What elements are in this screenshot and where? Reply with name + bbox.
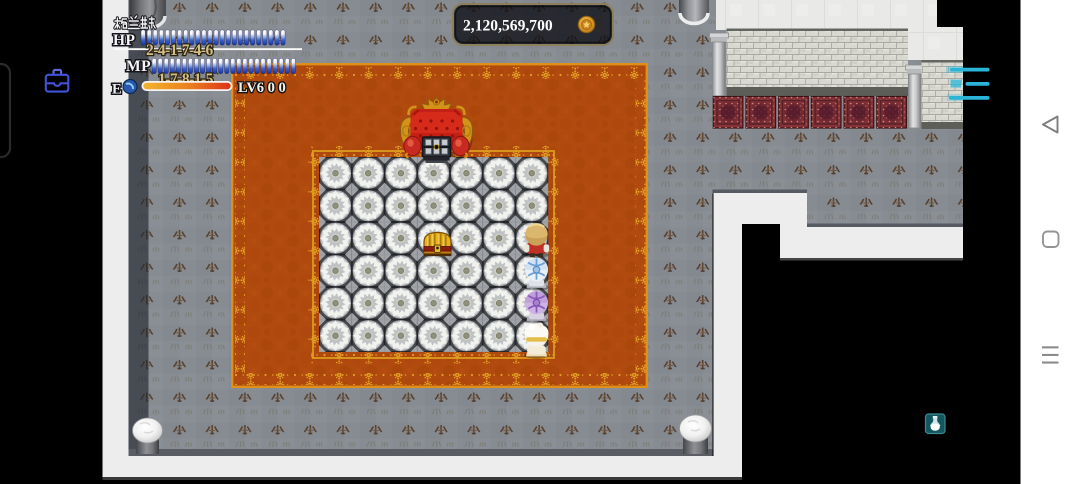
svg-text:2,120,569,700: 2,120,569,700 [463, 18, 553, 35]
svg-text:E: E [112, 82, 122, 98]
svg-text:LV6 0 0: LV6 0 0 [238, 80, 286, 96]
svg-text:2-4-1-7-4-6: 2-4-1-7-4-6 [146, 42, 214, 59]
svg-text:MP: MP [126, 58, 151, 75]
svg-text:HP: HP [113, 32, 136, 49]
